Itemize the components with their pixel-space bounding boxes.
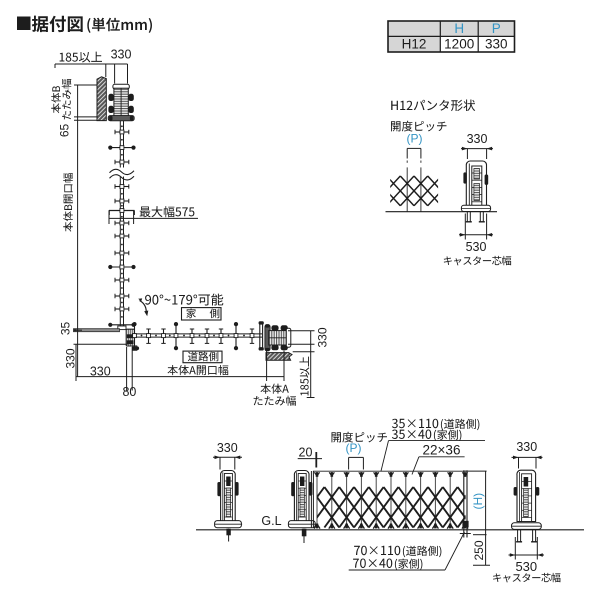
svg-text:1200: 1200 bbox=[444, 37, 474, 52]
svg-text:330: 330 bbox=[90, 365, 111, 379]
svg-text:330: 330 bbox=[111, 48, 132, 62]
svg-text:330: 330 bbox=[516, 440, 537, 454]
svg-text:(H): (H) bbox=[471, 493, 485, 510]
svg-text:(P): (P) bbox=[407, 132, 423, 146]
svg-text:(P): (P) bbox=[346, 441, 362, 455]
svg-text:330: 330 bbox=[217, 441, 238, 455]
svg-text:G.L: G.L bbox=[261, 514, 281, 528]
svg-text:530: 530 bbox=[515, 559, 537, 574]
svg-text:P: P bbox=[492, 21, 501, 36]
svg-text:330: 330 bbox=[64, 348, 78, 368]
svg-text:22×36: 22×36 bbox=[423, 443, 461, 458]
svg-text:330: 330 bbox=[467, 132, 488, 146]
svg-text:H: H bbox=[454, 21, 464, 36]
svg-text:35: 35 bbox=[59, 322, 73, 336]
svg-text:250: 250 bbox=[472, 540, 486, 560]
svg-text:65: 65 bbox=[58, 124, 72, 138]
svg-text:20: 20 bbox=[299, 446, 313, 460]
svg-text:330: 330 bbox=[485, 37, 508, 52]
svg-text:530: 530 bbox=[466, 240, 487, 254]
svg-text:H12: H12 bbox=[402, 37, 427, 52]
svg-text:330: 330 bbox=[316, 327, 330, 347]
svg-text:80: 80 bbox=[122, 385, 136, 399]
